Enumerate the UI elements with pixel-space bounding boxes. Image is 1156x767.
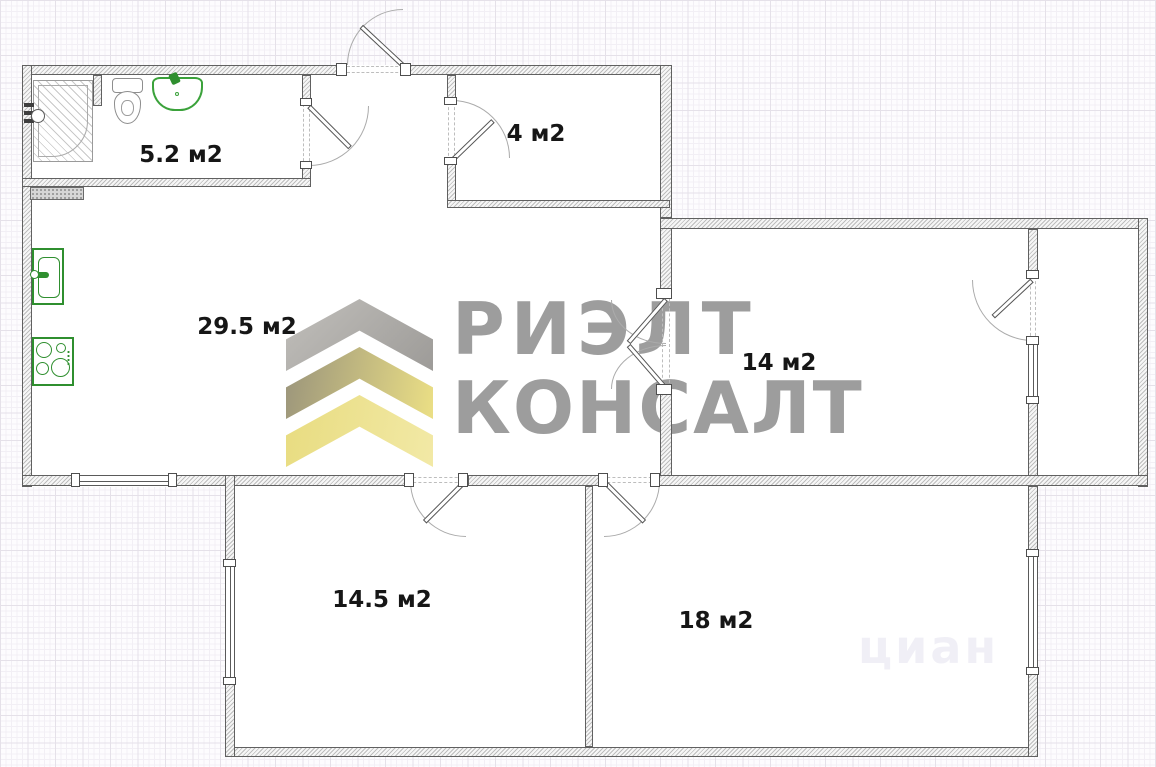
- kitchen-sink-tap-base: [30, 270, 39, 279]
- wall-living-room14-lower: [660, 388, 672, 477]
- wall-bathroom-bottom: [22, 178, 311, 187]
- wall-balcony-partition-upper: [1028, 229, 1038, 276]
- window-balcony-partition: [1028, 341, 1038, 400]
- outer-wall-right: [1138, 218, 1148, 487]
- wall-right-block-top: [660, 218, 1148, 229]
- window-kitchen-living: [77, 475, 173, 486]
- window-jamb: [71, 473, 80, 487]
- wall-mid-horizontal-2: [173, 475, 408, 486]
- stove-burner: [36, 362, 49, 375]
- window-room145: [225, 565, 235, 680]
- wall-living-room14-upper: [660, 218, 672, 298]
- door-jamb: [458, 473, 468, 487]
- wall-bottom-rooms-divider: [585, 486, 593, 747]
- window-jamb: [1026, 667, 1039, 675]
- vent-shaft: [30, 187, 84, 200]
- door-jamb: [300, 98, 312, 106]
- door-jamb: [1026, 270, 1039, 279]
- room-label-entry-room: 4 м2: [486, 121, 586, 147]
- window-jamb: [1026, 396, 1039, 404]
- window-jamb: [168, 473, 177, 487]
- wall-mid-horizontal-1: [22, 475, 77, 486]
- room-label-bathroom: 5.2 м2: [116, 142, 246, 168]
- floor-plan-canvas: РИЭЛТ КОНСАЛТ циан: [0, 0, 1156, 767]
- door-jamb: [400, 63, 411, 76]
- wall-balcony-partition-lower: [1028, 400, 1038, 477]
- wall-room18-right-lower: [1028, 673, 1038, 757]
- room-label-room18: 18 м2: [656, 608, 776, 634]
- door-jamb: [598, 473, 608, 487]
- wall-room18-right-upper: [1028, 486, 1038, 555]
- wall-room145-left-lower: [225, 680, 235, 757]
- window-jamb: [1026, 549, 1039, 557]
- outer-wall-top-left: [22, 65, 347, 75]
- outer-wall-top-right: [403, 65, 670, 75]
- door-jamb: [1026, 336, 1039, 345]
- window-room18: [1028, 555, 1038, 673]
- faint-site-watermark: циан: [858, 620, 999, 674]
- door-jamb: [300, 161, 312, 169]
- wall-mid-horizontal-3: [468, 475, 602, 486]
- door-jamb: [404, 473, 414, 487]
- window-jamb: [223, 559, 236, 567]
- stove-burner: [36, 342, 52, 358]
- door-jamb: [650, 473, 660, 487]
- wall-top-block-right: [660, 65, 672, 218]
- wall-bathroom-stub: [93, 75, 102, 106]
- door-jamb: [444, 97, 457, 105]
- door-jamb: [656, 288, 672, 299]
- wall-room145-left-upper: [225, 475, 235, 565]
- stove-burner: [56, 343, 66, 353]
- door-jamb: [336, 63, 347, 76]
- toilet-bowl-inner: [121, 100, 134, 116]
- room-label-room14: 14 м2: [719, 350, 839, 376]
- door-jamb: [656, 384, 672, 395]
- room-label-kitchen-living: 29.5 м2: [172, 314, 322, 340]
- threshold-entrance: [347, 66, 403, 73]
- wash-basin-drain: [175, 92, 179, 96]
- wall-mid-horizontal-4: [657, 475, 1148, 486]
- window-jamb: [223, 677, 236, 685]
- door-jamb: [444, 157, 457, 165]
- shower-head-icon: [31, 109, 45, 123]
- stove-knobs: [67, 350, 70, 366]
- outer-wall-bottom: [225, 747, 1038, 757]
- logo-text-line1: РИЭЛТ: [452, 293, 757, 365]
- room-label-room145: 14.5 м2: [307, 587, 457, 613]
- wall-entry-room-bottom: [447, 200, 670, 208]
